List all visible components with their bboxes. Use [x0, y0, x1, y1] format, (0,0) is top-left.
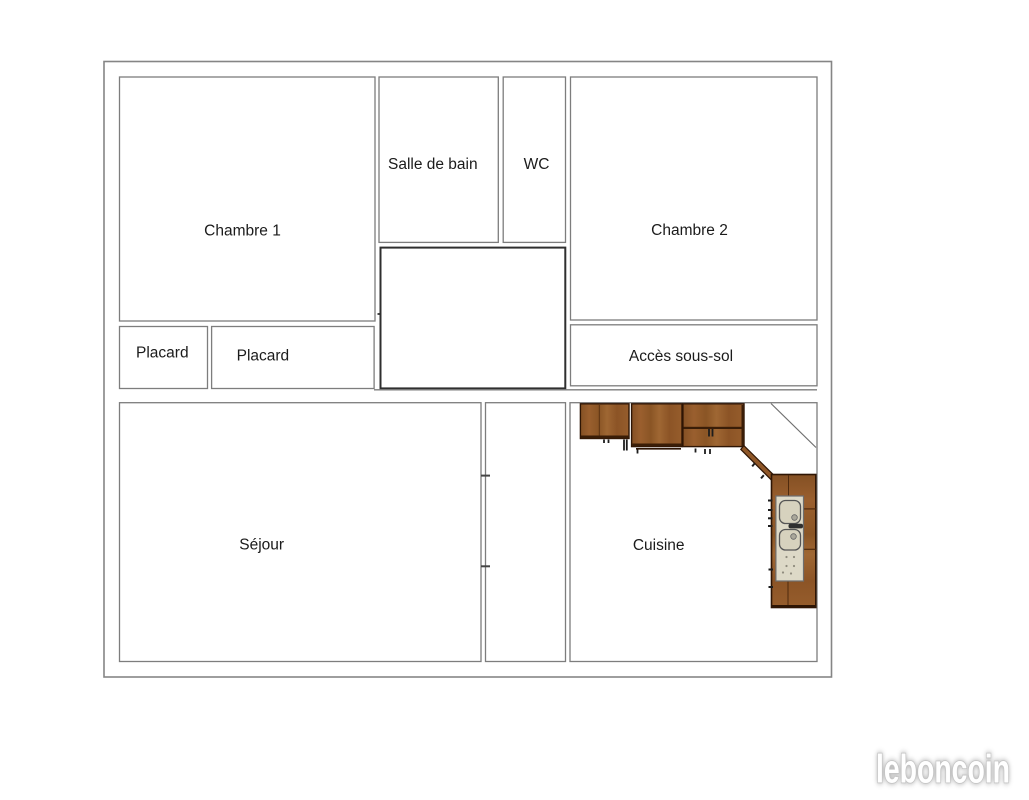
svg-text:Chambre 1: Chambre 1: [204, 223, 281, 240]
svg-text:Placard: Placard: [136, 345, 189, 362]
svg-text:Cuisine: Cuisine: [633, 537, 685, 554]
svg-text:WC: WC: [524, 156, 550, 173]
svg-text:Placard: Placard: [237, 348, 290, 365]
svg-text:Séjour: Séjour: [239, 537, 284, 554]
svg-text:leboncoin: leboncoin: [876, 748, 1010, 792]
svg-text:Chambre 2: Chambre 2: [651, 222, 728, 239]
svg-text:Salle de bain: Salle de bain: [388, 156, 478, 173]
svg-text:Accès sous-sol: Accès sous-sol: [629, 348, 733, 365]
